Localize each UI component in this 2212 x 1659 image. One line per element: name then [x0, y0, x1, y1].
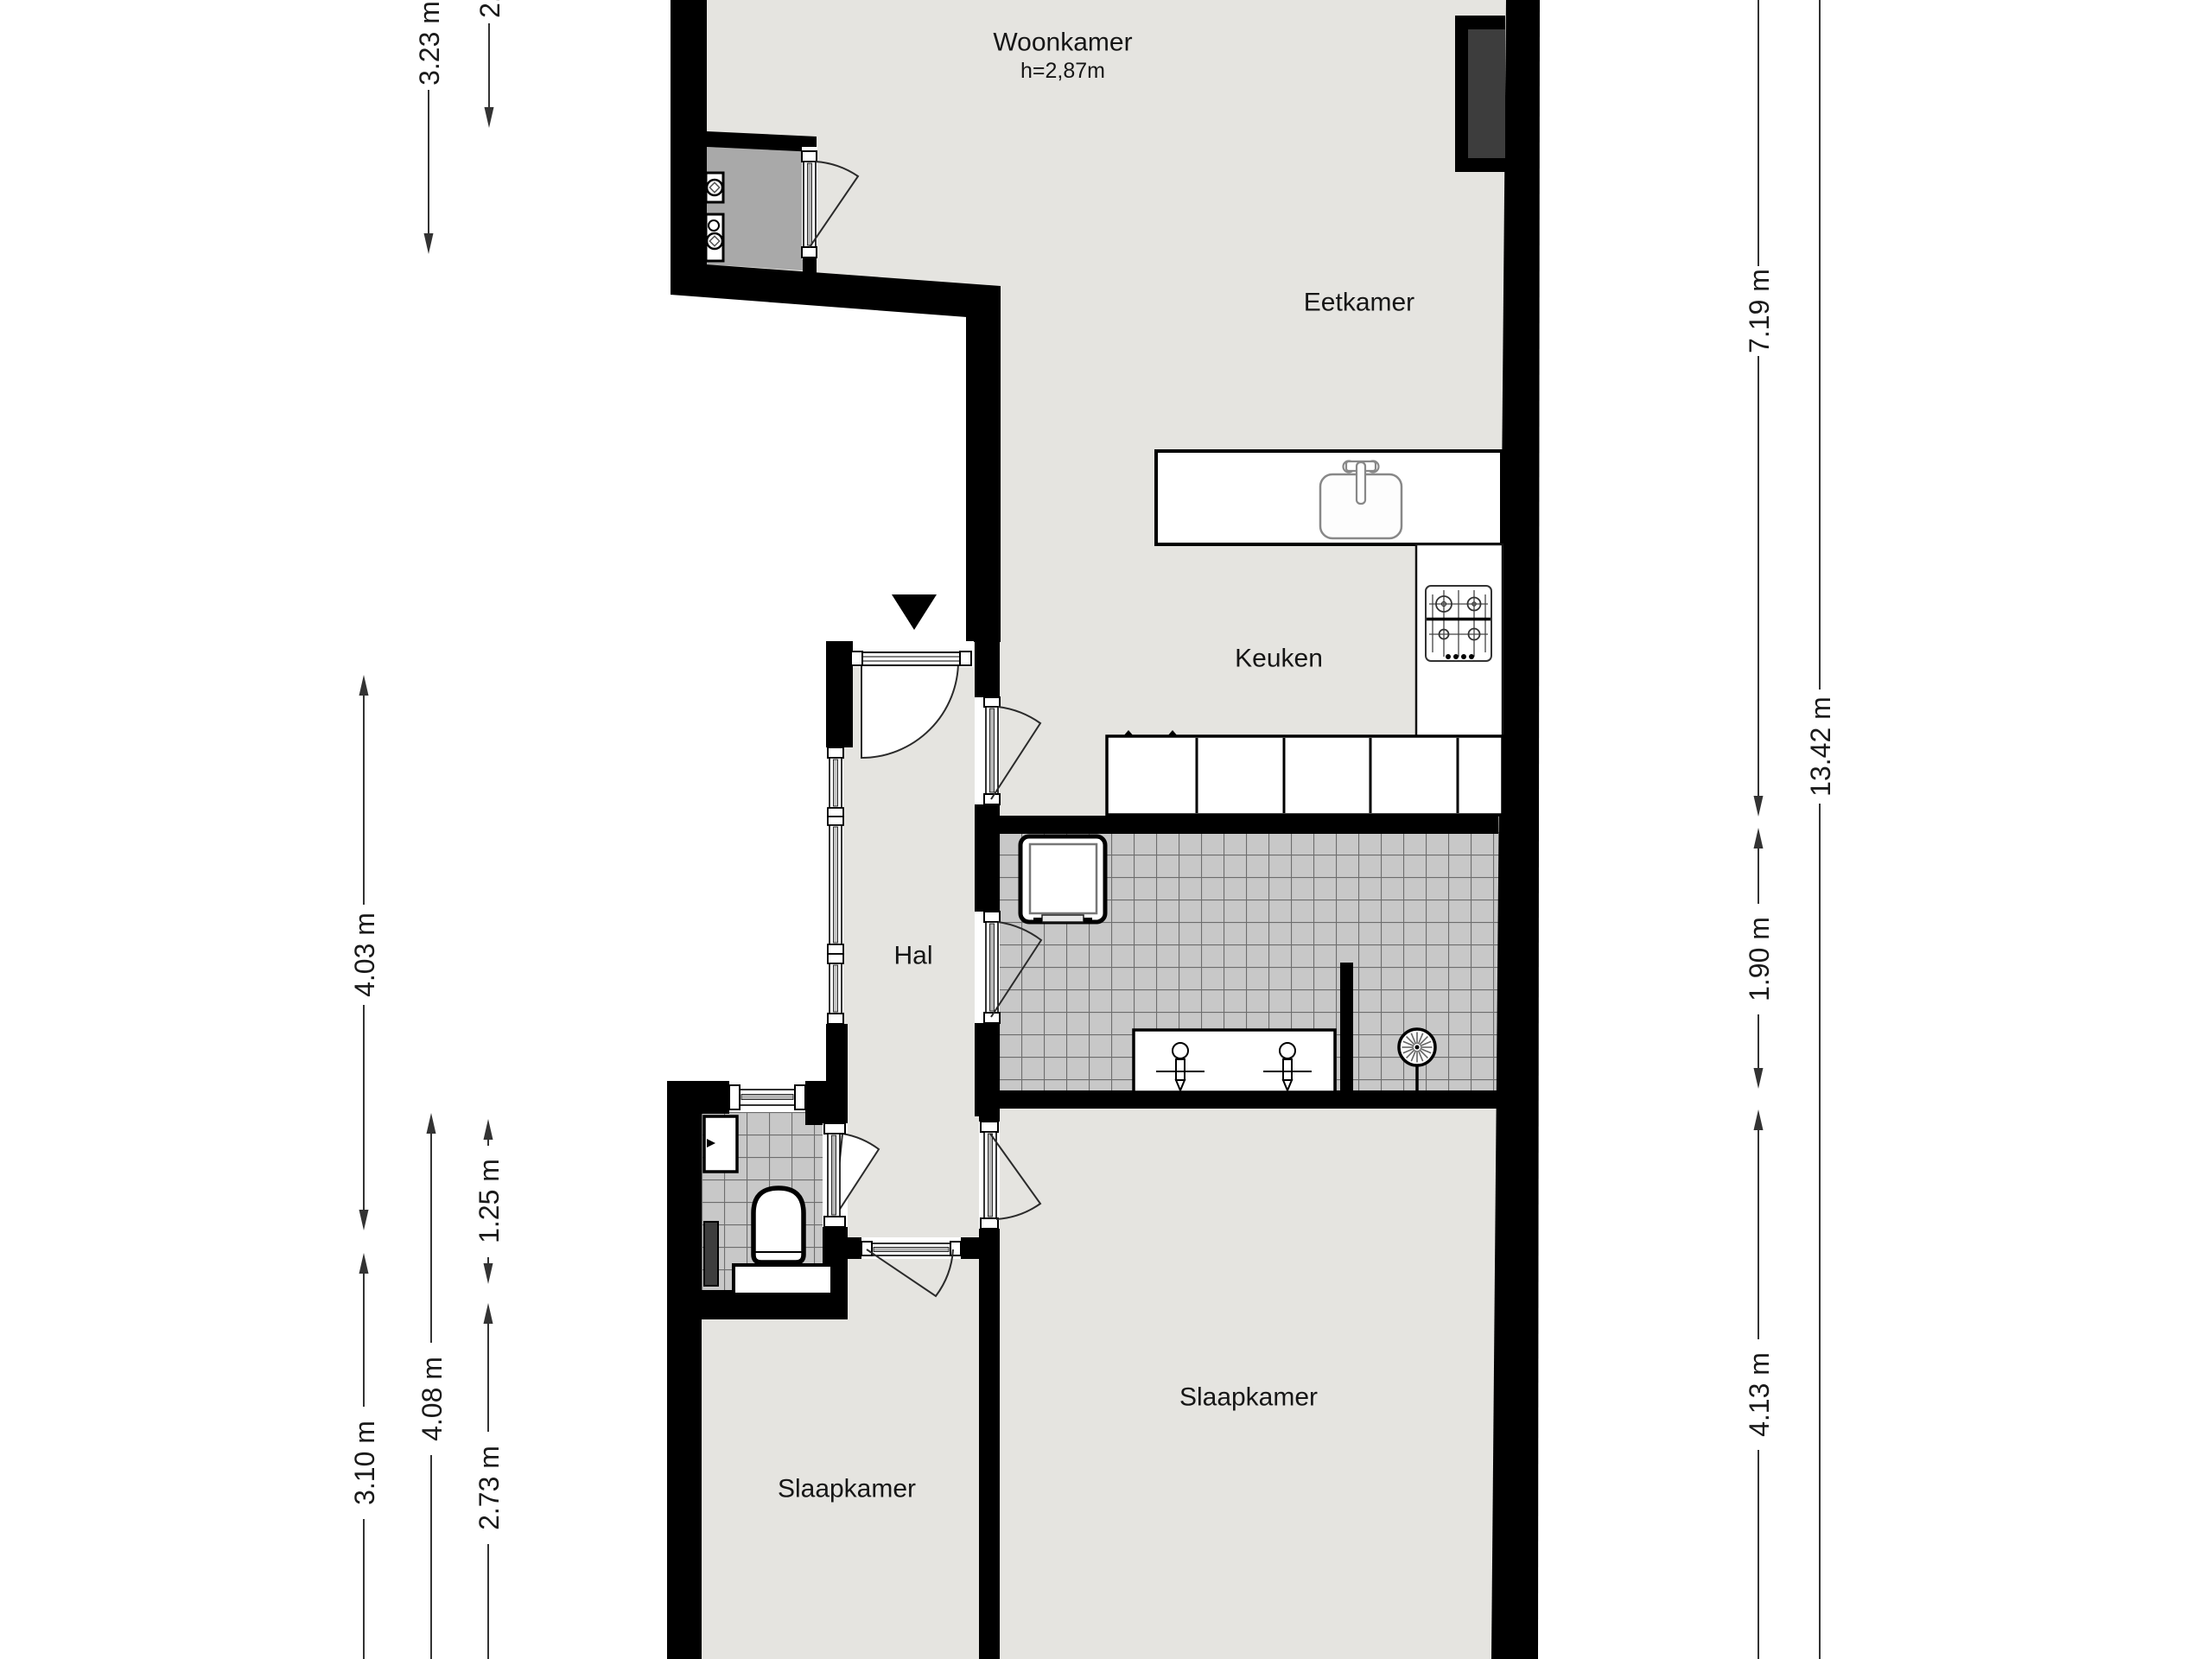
svg-text:3.10 m: 3.10 m: [349, 1421, 380, 1505]
svg-text:Hal: Hal: [893, 942, 932, 970]
svg-text:3.23 m: 3.23 m: [414, 1, 445, 86]
svg-text:Woonkamer: Woonkamer: [993, 29, 1132, 57]
svg-text:4.13 m: 4.13 m: [1744, 1352, 1775, 1437]
svg-text:Slaapkamer: Slaapkamer: [1179, 1383, 1318, 1412]
svg-text:4.08 m: 4.08 m: [416, 1357, 448, 1441]
svg-text:2.05 m: 2.05 m: [474, 0, 505, 18]
svg-text:2.73 m: 2.73 m: [474, 1446, 505, 1530]
svg-text:7.19 m: 7.19 m: [1744, 269, 1775, 353]
svg-text:1.25 m: 1.25 m: [474, 1159, 505, 1243]
svg-text:Slaapkamer: Slaapkamer: [778, 1475, 916, 1503]
svg-text:1.90 m: 1.90 m: [1744, 917, 1775, 1001]
svg-text:Keuken: Keuken: [1235, 645, 1323, 673]
svg-text:Eetkamer: Eetkamer: [1304, 289, 1414, 317]
svg-text:13.42 m: 13.42 m: [1805, 696, 1836, 797]
svg-text:h=2,87m: h=2,87m: [1020, 59, 1105, 83]
svg-text:4.03 m: 4.03 m: [349, 912, 380, 997]
